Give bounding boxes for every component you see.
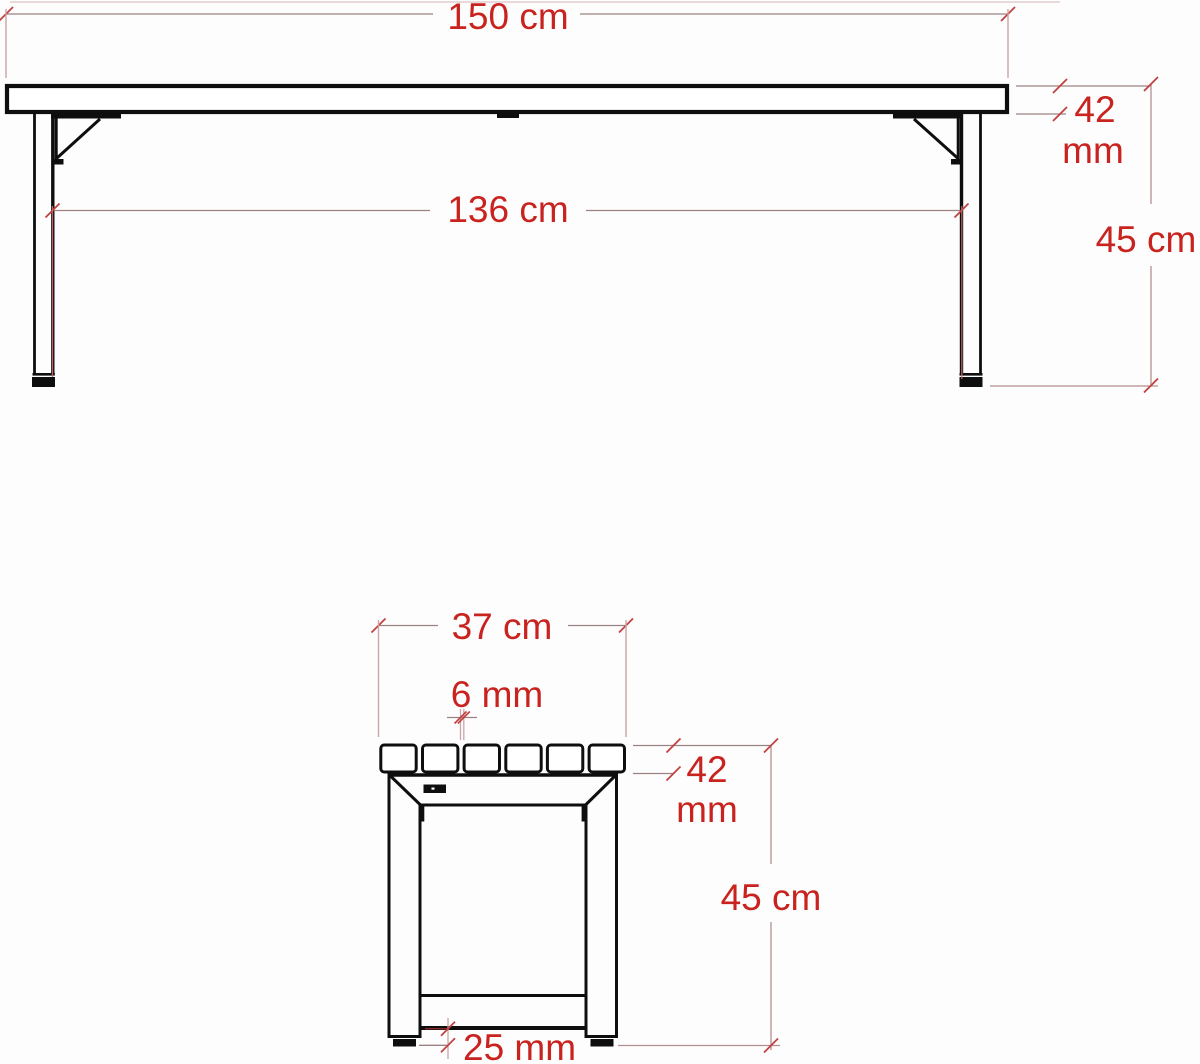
svg-text:6 mm: 6 mm: [451, 674, 544, 715]
svg-text:45 cm: 45 cm: [1096, 219, 1197, 260]
svg-text:mm: mm: [676, 789, 738, 830]
svg-text:mm: mm: [1062, 130, 1124, 171]
svg-text:37 cm: 37 cm: [452, 606, 553, 647]
svg-text:42: 42: [686, 749, 727, 790]
svg-text:136 cm: 136 cm: [447, 189, 568, 230]
svg-text:150 cm: 150 cm: [447, 0, 568, 37]
svg-text:42: 42: [1074, 89, 1115, 130]
svg-text:45 cm: 45 cm: [721, 877, 822, 918]
svg-text:25 mm: 25 mm: [463, 1027, 576, 1064]
